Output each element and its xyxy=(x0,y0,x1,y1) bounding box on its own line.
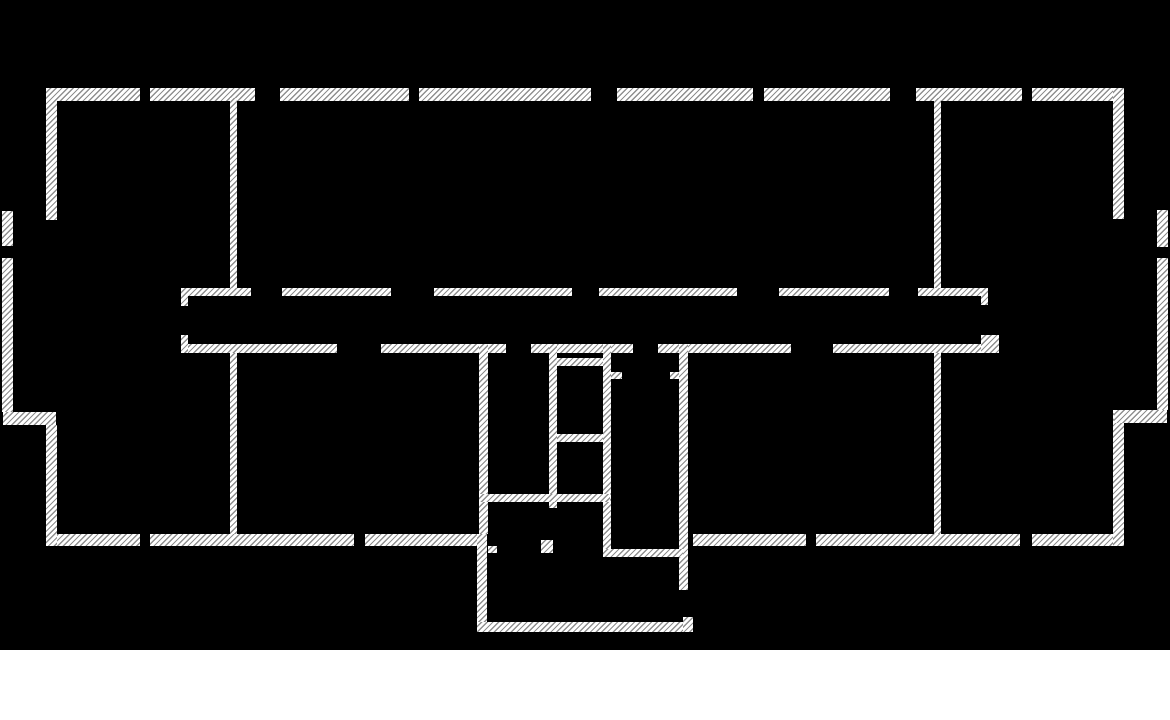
left-room-divider-upper xyxy=(230,98,237,288)
bottom-wall-segment-3 xyxy=(365,534,482,546)
stair-door-jamb-west xyxy=(611,372,622,379)
corridor-lower-wall-segment-5 xyxy=(833,344,986,353)
page-margin-strip xyxy=(0,650,1170,720)
right-bay-wall-lower xyxy=(1157,258,1168,410)
vestibule-south-wall xyxy=(479,494,610,502)
stair-block-west-wall xyxy=(479,344,488,534)
stair-block-inner-wall-2 xyxy=(603,344,611,557)
bottom-wall-segment-1 xyxy=(48,534,140,546)
bottom-wall-segment-5 xyxy=(816,534,1020,546)
corridor-lower-wall-segment-3 xyxy=(531,344,633,353)
top-wall-segment-8 xyxy=(1032,88,1124,101)
stair-landing-wall-upper xyxy=(557,358,603,366)
right-wall-lower xyxy=(1113,410,1124,546)
top-wall-segment-1 xyxy=(46,88,140,101)
stair-block-inner-wall-1 xyxy=(549,344,557,508)
right-bay-connector xyxy=(1114,410,1167,423)
right-wall-upper xyxy=(1113,88,1124,219)
corridor-upper-wall-segment-6 xyxy=(918,288,986,296)
corridor-lower-wall-segment-4 xyxy=(658,344,791,353)
right-room-divider-upper xyxy=(934,98,941,288)
floor-plan-canvas xyxy=(0,0,1170,650)
stair-landing-wall-lower xyxy=(557,434,603,442)
left-wall-upper xyxy=(46,88,57,220)
corridor-lower-west-end-stub xyxy=(181,335,188,353)
top-wall-segment-3 xyxy=(280,88,409,101)
porch-east-corner xyxy=(683,617,693,632)
bottom-wall-segment-4 xyxy=(693,534,806,546)
top-wall-segment-4 xyxy=(419,88,591,101)
corridor-upper-wall-segment-1 xyxy=(181,288,251,296)
corridor-lower-wall-segment-1 xyxy=(181,344,337,353)
corridor-upper-wall-segment-5 xyxy=(779,288,889,296)
corridor-upper-east-end-stub xyxy=(981,288,988,305)
bottom-wall-segment-2 xyxy=(150,534,354,546)
corridor-lower-east-end-stub xyxy=(981,335,999,353)
top-wall-segment-6 xyxy=(764,88,890,101)
stair-block-south-connector xyxy=(603,549,683,557)
corridor-upper-wall-segment-3 xyxy=(434,288,572,296)
left-bay-wall-lower xyxy=(2,258,13,412)
entry-door-jamb-west xyxy=(488,546,497,553)
entry-door-jamb-east xyxy=(541,540,553,553)
stair-door-jamb-east xyxy=(670,372,679,379)
top-wall-segment-5 xyxy=(617,88,753,101)
porch-south-wall xyxy=(477,622,693,632)
left-room-divider-lower xyxy=(230,353,237,534)
bottom-wall-segment-6 xyxy=(1032,534,1118,546)
corridor-upper-wall-segment-2 xyxy=(282,288,391,296)
left-wall-lower xyxy=(46,425,57,546)
right-bay-wall-upper xyxy=(1157,210,1168,247)
top-wall-segment-2 xyxy=(150,88,255,101)
corridor-upper-wall-segment-4 xyxy=(599,288,737,296)
top-wall-segment-7 xyxy=(916,88,1022,101)
porch-west-wall xyxy=(477,534,487,632)
left-bay-wall-upper xyxy=(2,211,13,246)
left-bay-connector xyxy=(3,412,56,425)
corridor-upper-west-end-stub xyxy=(181,288,188,306)
right-room-divider-lower xyxy=(934,353,941,534)
